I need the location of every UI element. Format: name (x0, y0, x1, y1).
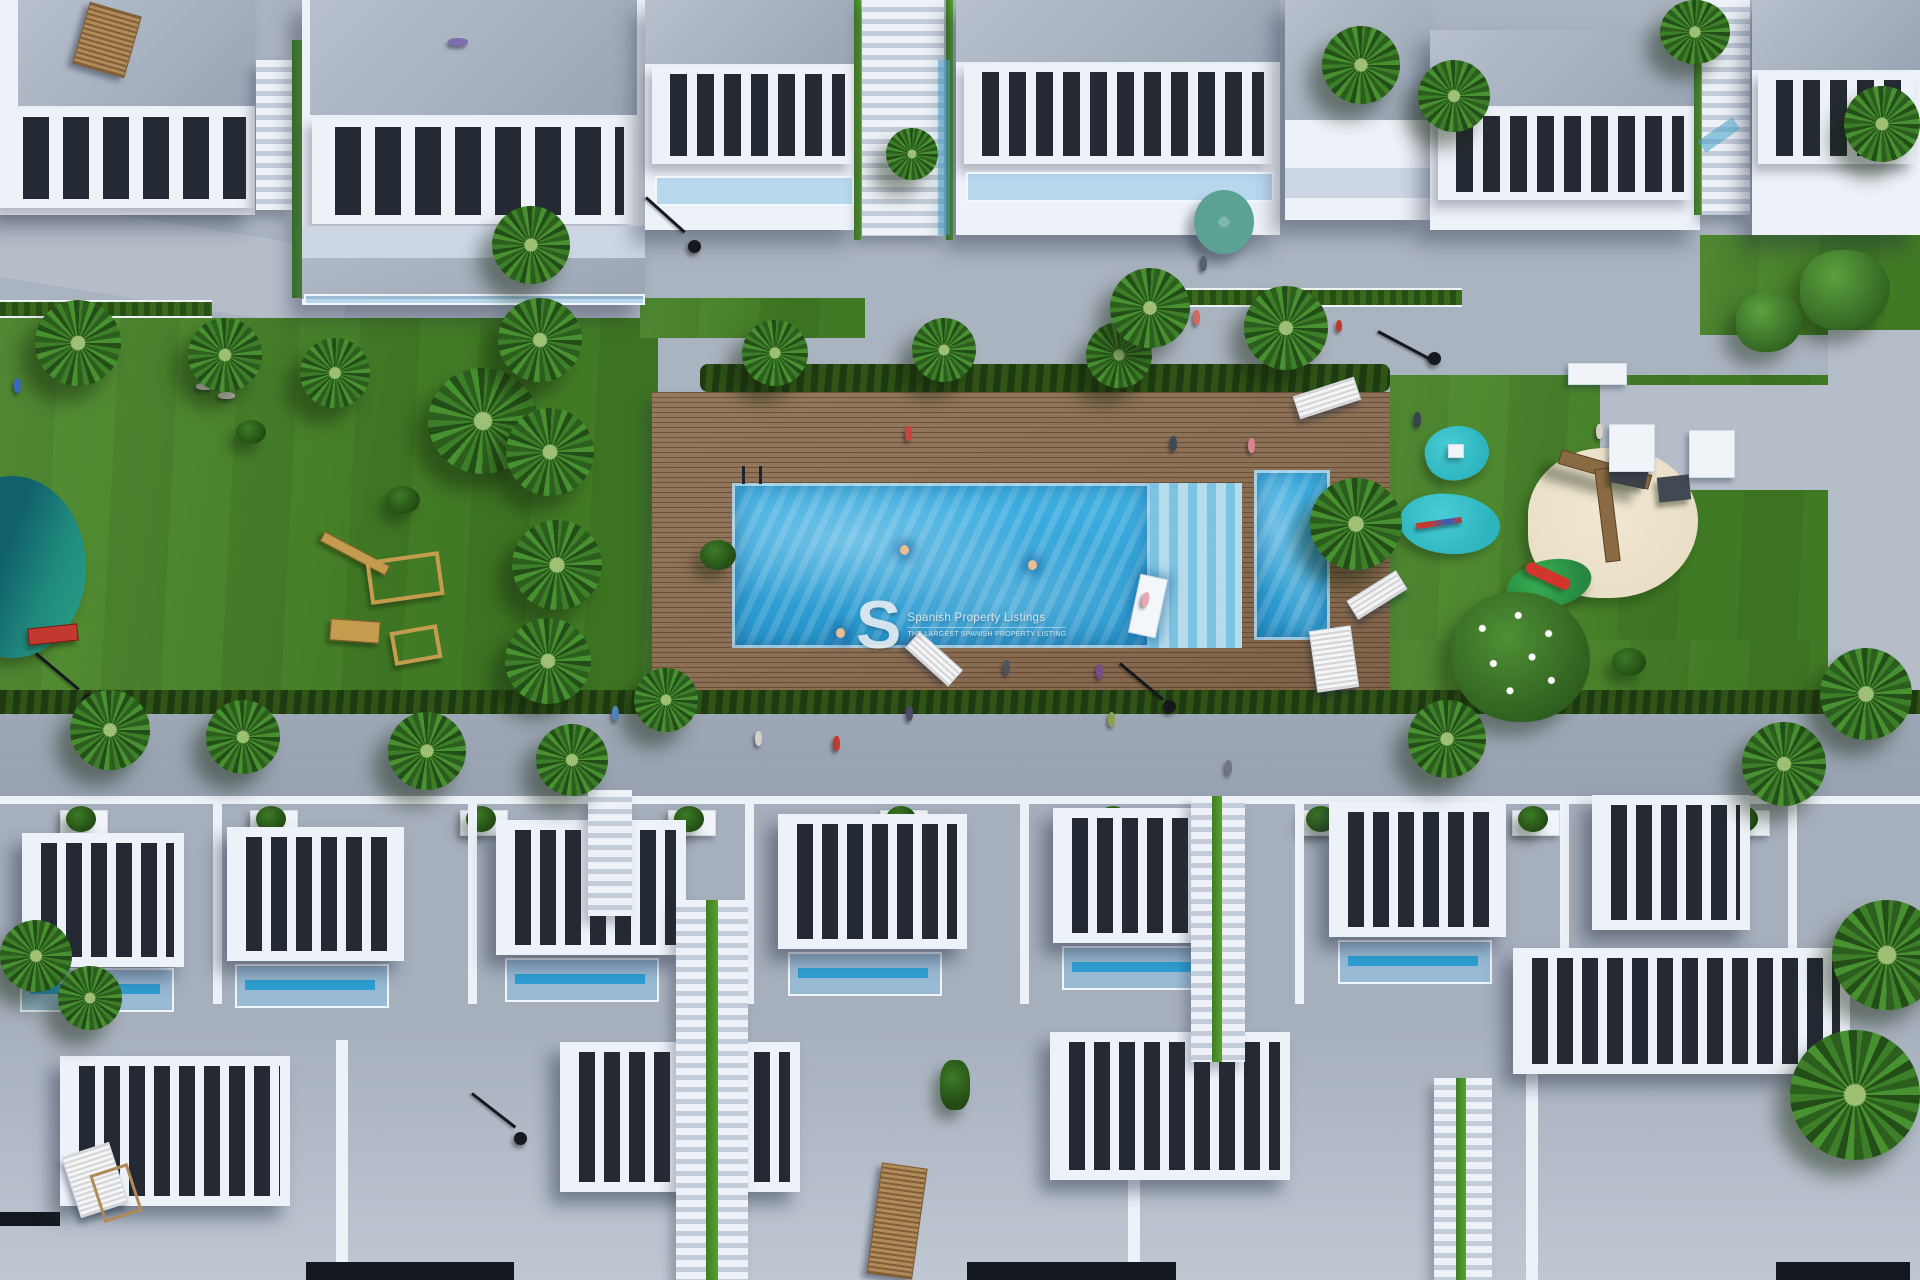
window-slot (0, 1212, 60, 1226)
terrace-railing (312, 118, 633, 224)
promenade-road (0, 714, 1920, 800)
roof-terrace (645, 0, 860, 64)
person-under-parasol (1200, 256, 1207, 271)
play-toy (1448, 444, 1464, 458)
pedestrian (906, 706, 913, 721)
palm-tree (388, 712, 466, 790)
palm-tree (300, 338, 370, 408)
party-wall (336, 1040, 348, 1280)
window-slot (306, 1262, 514, 1280)
palm-tree (1418, 60, 1490, 132)
terrace-plunge-pool (505, 958, 659, 1002)
glass-panel (938, 60, 950, 235)
terrace-railing (0, 108, 255, 208)
pergola-frame-large (1050, 1032, 1290, 1180)
palm-tree (742, 320, 808, 386)
party-wall (1020, 804, 1029, 1004)
swimmer (900, 545, 909, 555)
green-strip (854, 0, 861, 240)
palm-tree (1408, 700, 1486, 778)
swimmer (1028, 560, 1037, 570)
person-standing (1596, 424, 1603, 439)
glass-balustrade (655, 176, 854, 206)
roof-terrace (956, 0, 1280, 62)
outdoor-gym-bench (329, 618, 380, 643)
bush (386, 486, 420, 514)
stair-green-strip (1456, 1078, 1466, 1280)
bench (1689, 430, 1735, 478)
stair-green-strip (706, 900, 718, 1280)
pergola-frame-large (1513, 948, 1850, 1074)
watermark-logo: S (856, 598, 899, 652)
watermark-subtitle: THE LARGEST SPANISH PROPERTY LISTING (907, 627, 1066, 638)
person-sitting (1193, 310, 1200, 325)
green-strip (292, 40, 302, 298)
play-tower-roof (1657, 474, 1691, 502)
bush (1612, 648, 1646, 676)
pedestrian (755, 731, 762, 746)
plunge-pool-water (515, 974, 645, 984)
person-on-deck (905, 426, 912, 441)
party-wall (213, 804, 222, 1004)
child-walking (1336, 320, 1342, 332)
palm-tree (35, 300, 121, 386)
pedestrian (1108, 712, 1115, 727)
palm-tree (498, 298, 582, 382)
pool-steps (1150, 483, 1242, 648)
pool-ladder (742, 466, 762, 484)
bush (700, 540, 736, 570)
person-on-deck (1003, 660, 1010, 675)
bench (1609, 424, 1655, 472)
plunge-pool-water (1072, 962, 1202, 972)
palm-tree (1322, 26, 1400, 104)
palm-tree (1790, 1030, 1920, 1160)
palm-tree (505, 618, 591, 704)
central-staircase (862, 0, 944, 236)
apartment-block-f (1430, 30, 1700, 230)
palm-tree (1310, 478, 1402, 570)
planter-bush (66, 806, 96, 832)
plunge-pool-water (1348, 956, 1478, 966)
palm-tree (1820, 648, 1912, 740)
apartment-block-c (645, 0, 860, 230)
palm-tree (1742, 722, 1826, 806)
person-on-deck (1248, 438, 1255, 453)
leafy-tree (1736, 292, 1802, 352)
glass-balustrade (304, 294, 645, 305)
terrace-plunge-pool (788, 952, 942, 996)
facade-band (302, 226, 645, 258)
pedestrian (1414, 412, 1421, 427)
terrace-railing (964, 64, 1272, 164)
plunge-pool-water (245, 980, 375, 990)
roof-terrace (310, 0, 637, 115)
person-sunbathing (448, 38, 468, 46)
window-slot (1776, 1262, 1910, 1280)
party-wall (468, 804, 477, 1004)
pergola-frame (778, 814, 967, 949)
stair-green-strip (1212, 796, 1222, 1062)
stairs-top-left (256, 60, 292, 210)
plunge-pool-water (798, 968, 928, 978)
watermark: S Spanish Property Listings THE LARGEST … (856, 598, 1066, 652)
planter-bush (1518, 806, 1548, 832)
hedge-row-road-top (0, 690, 1920, 714)
lower-terrace (302, 258, 645, 299)
palm-tree (492, 206, 570, 284)
palm-tree (1844, 86, 1920, 162)
palm-tree (1244, 286, 1328, 370)
palm-tree (58, 966, 122, 1030)
street-lamp (1163, 700, 1176, 713)
palm-tree (188, 318, 262, 392)
terrace-railing (652, 66, 853, 164)
watermark-text: Spanish Property Listings THE LARGEST SP… (907, 612, 1066, 638)
palm-tree (506, 408, 594, 496)
townhouse-staircase (588, 790, 632, 916)
palm-tree (634, 668, 698, 732)
party-wall (1295, 804, 1304, 1004)
person-walking (14, 378, 21, 393)
flowering-tree (1452, 592, 1590, 722)
sun-lounger (1309, 625, 1359, 692)
terrace-plunge-pool (235, 964, 389, 1008)
person-lying (218, 392, 235, 399)
terrace-plunge-pool (1338, 940, 1492, 984)
street-lamp (1428, 352, 1441, 365)
street-lamp (514, 1132, 527, 1145)
palm-tree (70, 690, 150, 770)
palm-tree (536, 724, 608, 796)
person-on-deck (1170, 436, 1177, 451)
aerial-development-render: S Spanish Property Listings THE LARGEST … (0, 0, 1920, 1280)
bush (236, 420, 266, 444)
lamp-pole (1377, 330, 1433, 362)
swimmer (836, 628, 845, 638)
pedestrian (612, 706, 619, 721)
palm-tree (1110, 268, 1190, 348)
pedestrian (833, 736, 840, 751)
person-on-deck (1096, 664, 1103, 679)
palm-tree (912, 318, 976, 382)
palm-tree (206, 700, 280, 774)
parasol (1194, 190, 1254, 254)
apartment-block-b (302, 0, 645, 305)
palm-tree (886, 128, 938, 180)
roof-terrace (1752, 0, 1920, 70)
pergola-frame (1592, 795, 1750, 930)
palm-tree (512, 520, 602, 610)
bush (940, 1060, 970, 1110)
pergola-frame (1329, 802, 1506, 937)
party-wall (1526, 1040, 1538, 1280)
planter-box (1568, 363, 1627, 385)
street-lamp (688, 240, 701, 253)
facade-band (1285, 168, 1430, 198)
window-slot (967, 1262, 1176, 1280)
palm-tree (1660, 0, 1730, 64)
watermark-title: Spanish Property Listings (907, 612, 1066, 624)
pedestrian (1225, 760, 1232, 775)
pergola-frame (227, 827, 404, 961)
